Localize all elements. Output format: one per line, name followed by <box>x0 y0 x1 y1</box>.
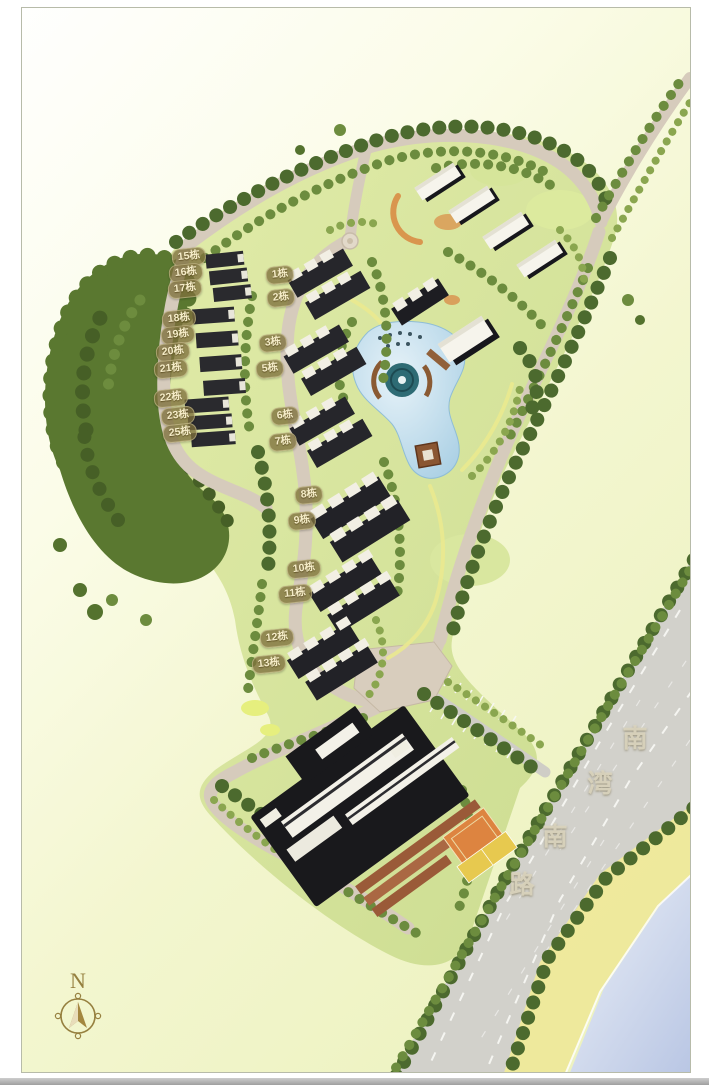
compass-rose: N <box>48 966 108 1048</box>
villa-group-22-25 <box>185 396 236 447</box>
compass-north-label: N <box>70 968 86 993</box>
lawn-patch <box>241 700 269 716</box>
site-plan-rendering <box>21 7 691 1073</box>
map-frame <box>21 7 691 1073</box>
site-plan-page: 15栋 16栋 17栋 18栋 19栋 20栋 21栋 22栋 23栋 25栋 … <box>0 0 709 1085</box>
lawn-patch <box>260 724 280 736</box>
lake-pavilion <box>415 442 440 467</box>
scan-edge-strip <box>0 1078 709 1085</box>
